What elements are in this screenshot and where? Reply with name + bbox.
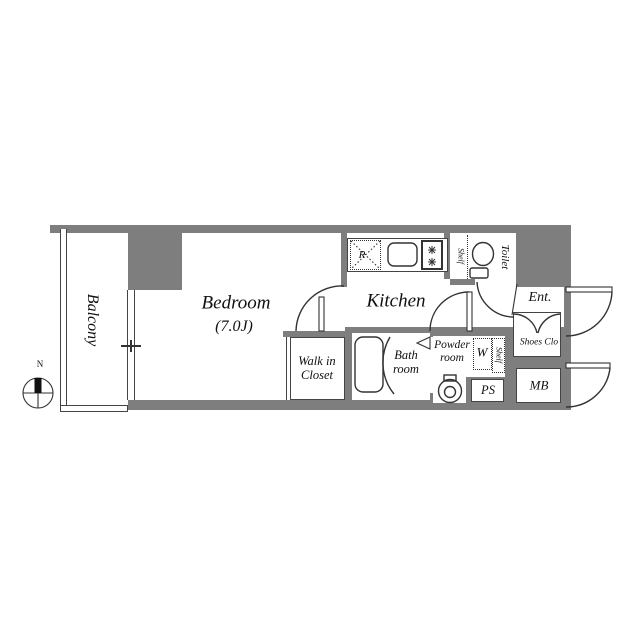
compass-north-label: N <box>37 359 44 369</box>
compass-north-needle <box>35 378 42 393</box>
bedroom-label: Bedroom <box>202 292 271 313</box>
floor-plan: Balcony Bedroom (7.0J) Kitchen Walk in C… <box>0 0 639 640</box>
shoes-closet-label: Shoes Clo <box>520 338 558 349</box>
walk-in-closet-label: Walk in Closet <box>286 354 348 382</box>
meter-box-label: MB <box>530 379 549 394</box>
washbasin-icon <box>439 375 462 403</box>
door-leaf <box>319 297 324 331</box>
powder-room-label: Powder room <box>422 339 482 365</box>
door-arc-icon <box>514 314 537 333</box>
toilet-label: Toilet <box>499 245 511 270</box>
door-arc-icon <box>538 314 560 333</box>
door-leaf <box>566 287 612 292</box>
door-leaf <box>512 284 517 315</box>
powder-shelf-label: Shelf <box>494 347 503 363</box>
toilet-icon <box>470 243 494 279</box>
kitchen-label: Kitchen <box>366 290 425 311</box>
bedroom-door <box>296 286 344 331</box>
washer-label: W <box>477 346 488 361</box>
door-arc-icon <box>430 292 469 331</box>
door-arc-icon <box>477 282 514 317</box>
shoes-closet-doors <box>514 314 560 333</box>
entrance-label: Ent. <box>529 290 552 306</box>
door-arc-icon <box>566 368 610 407</box>
toilet-door <box>477 282 517 317</box>
toilet-shelf-label: Shelf <box>456 248 465 264</box>
bathtub-icon <box>355 337 383 392</box>
balcony-label: Balcony <box>83 294 101 346</box>
door-leaf <box>566 363 610 368</box>
refrigerator-label: R <box>359 249 366 261</box>
compass-icon <box>23 378 53 408</box>
kitchen-sink-icon <box>388 243 417 266</box>
stove-icon <box>422 241 442 269</box>
entrance-door <box>566 287 612 336</box>
pipe-space-label: PS <box>481 383 495 397</box>
bedroom-size-label: (7.0J) <box>215 318 253 336</box>
meter-box-door <box>566 363 610 407</box>
door-leaf <box>467 292 472 331</box>
hallway-door <box>430 292 472 331</box>
door-arc-icon <box>566 292 612 336</box>
